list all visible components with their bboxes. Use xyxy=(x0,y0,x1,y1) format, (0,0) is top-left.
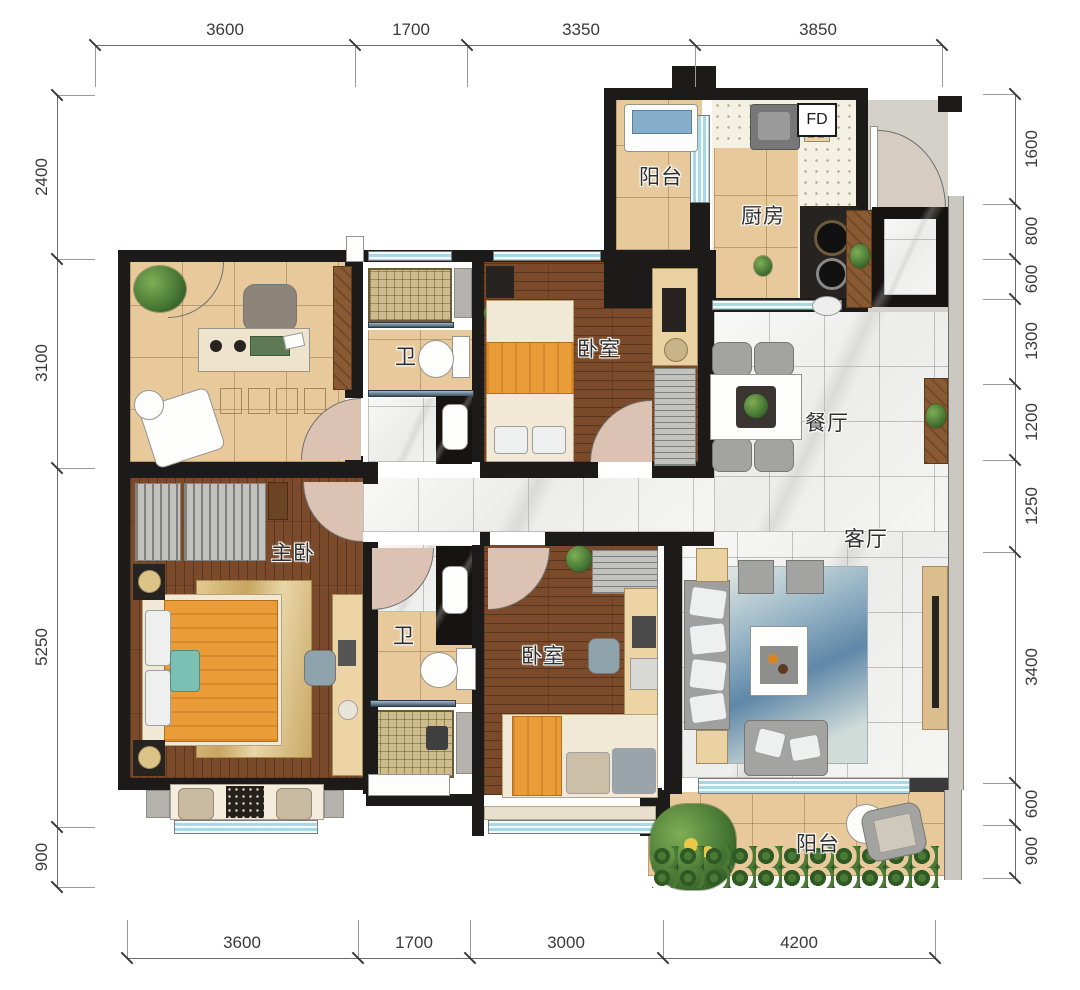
extension-line xyxy=(695,45,696,87)
exterior-wall xyxy=(944,790,962,880)
seat-table xyxy=(226,786,264,818)
dining-chair xyxy=(754,342,794,376)
bathtub xyxy=(368,774,450,796)
extension-line xyxy=(942,45,943,87)
papers xyxy=(630,658,658,690)
pillow xyxy=(145,670,171,726)
room-label-balcony-bottom: 阳台 xyxy=(796,828,840,858)
bath-sink xyxy=(442,566,468,614)
extension-line xyxy=(935,920,936,958)
burner xyxy=(814,220,850,256)
side-table xyxy=(134,390,164,420)
dim-left-3: 900 xyxy=(32,843,52,871)
bay-window xyxy=(174,820,318,834)
extension-line xyxy=(355,45,356,87)
desk xyxy=(332,594,363,776)
plant xyxy=(850,244,870,268)
room-label-balcony-top: 阳台 xyxy=(639,161,683,191)
seat-cushion xyxy=(276,788,312,820)
window xyxy=(368,251,452,261)
plant xyxy=(566,546,592,572)
extension-line xyxy=(470,920,471,958)
floor-marking xyxy=(304,388,326,414)
wardrobe xyxy=(135,483,181,561)
extension-line xyxy=(467,45,468,87)
tall-cabinet xyxy=(333,266,352,390)
radiator-cabinet xyxy=(654,368,696,466)
bay-pier xyxy=(146,790,170,818)
extension-line xyxy=(983,299,1016,300)
dim-bottom-2: 3000 xyxy=(547,933,585,953)
extension-line xyxy=(983,94,1016,95)
room-label-bedroom-bottom: 卧室 xyxy=(521,640,565,670)
dining-chair xyxy=(754,438,794,472)
extension-line xyxy=(983,384,1016,385)
pillow xyxy=(145,610,171,666)
dimension-line-top xyxy=(95,45,942,46)
tv-on-dresser xyxy=(662,288,686,332)
wall xyxy=(604,88,616,250)
corridor-floor xyxy=(363,478,714,532)
toilet-tank xyxy=(456,648,476,690)
lamp xyxy=(138,746,161,769)
toilet-tank xyxy=(452,336,470,378)
entry-door-leaf xyxy=(870,126,878,210)
fd-label: FD xyxy=(806,111,827,129)
dim-bottom-1: 1700 xyxy=(395,933,433,953)
extension-line xyxy=(983,259,1016,260)
room-label-bedroom-top: 卧室 xyxy=(577,333,621,363)
dining-chair xyxy=(712,342,752,376)
wall xyxy=(856,100,868,212)
wardrobe xyxy=(184,483,266,561)
shower-top xyxy=(368,268,452,322)
extension-line xyxy=(983,825,1016,826)
pillow xyxy=(532,426,566,454)
desk-item xyxy=(338,700,358,720)
extension-line xyxy=(57,259,95,260)
chair xyxy=(588,638,620,674)
dim-top-0: 3600 xyxy=(206,20,244,40)
sofa-cushion xyxy=(688,586,728,621)
wall xyxy=(545,532,714,546)
wall xyxy=(363,462,378,484)
dim-top-1: 1700 xyxy=(392,20,430,40)
bay-window-seat xyxy=(484,806,656,820)
laptop xyxy=(632,616,656,648)
dim-left-2: 5250 xyxy=(32,628,52,666)
pillow xyxy=(566,752,610,794)
window xyxy=(493,251,601,261)
floor-marking xyxy=(248,388,270,414)
pillow xyxy=(494,426,528,454)
dim-right-8: 900 xyxy=(1022,837,1042,865)
dim-top-3: 3850 xyxy=(799,20,837,40)
dim-right-1: 800 xyxy=(1022,217,1042,245)
dim-right-4: 1200 xyxy=(1022,403,1042,441)
tv xyxy=(932,596,939,708)
extension-line xyxy=(983,460,1016,461)
extension-line xyxy=(57,468,95,469)
bay-pier xyxy=(324,790,344,818)
bay-window xyxy=(488,820,656,834)
extension-line xyxy=(358,920,359,958)
wall xyxy=(690,203,710,253)
extension-line xyxy=(57,827,95,828)
bath-sink xyxy=(442,404,468,450)
fd-marker: FD xyxy=(797,103,837,137)
dim-left-0: 2400 xyxy=(32,158,52,196)
shower-sliding-door xyxy=(368,322,454,328)
extension-line xyxy=(983,204,1016,205)
dim-right-3: 1300 xyxy=(1022,322,1042,360)
room-label-living: 客厅 xyxy=(844,523,888,553)
wall xyxy=(118,250,130,790)
bath-mat xyxy=(454,268,472,318)
ottoman xyxy=(786,560,824,594)
wall xyxy=(672,66,716,100)
floor-marking xyxy=(276,388,298,414)
extension-line xyxy=(983,878,1016,879)
wall xyxy=(664,532,682,794)
balcony-sliding-door xyxy=(698,778,910,794)
wall xyxy=(118,462,352,478)
accent-pillow xyxy=(170,650,200,692)
desk-item xyxy=(234,340,246,352)
dim-top-2: 3350 xyxy=(562,20,600,40)
dim-bottom-0: 3600 xyxy=(223,933,261,953)
shower-sliding-door xyxy=(370,700,456,707)
sofa-cushion xyxy=(689,622,728,656)
chair xyxy=(304,650,336,686)
dim-bottom-3: 4200 xyxy=(780,933,818,953)
flower xyxy=(778,664,788,674)
wall xyxy=(480,532,490,546)
extension-line xyxy=(663,920,664,958)
toilet xyxy=(420,652,458,688)
extension-line xyxy=(57,887,95,888)
kitchen-sink-basin xyxy=(758,112,790,140)
toilet xyxy=(418,340,454,378)
bed-blanket xyxy=(486,342,574,394)
extension-line xyxy=(95,45,96,87)
wall xyxy=(480,462,598,478)
nightstand xyxy=(486,266,514,298)
wall xyxy=(604,88,868,100)
table-centerpiece xyxy=(744,394,768,418)
flower xyxy=(768,654,778,664)
dim-right-6: 3400 xyxy=(1022,648,1042,686)
bed-blanket xyxy=(512,716,562,796)
shower-fixture xyxy=(426,726,448,750)
extension-line xyxy=(983,783,1016,784)
duct xyxy=(346,236,364,262)
wall xyxy=(938,96,962,112)
dim-left-1: 3100 xyxy=(32,344,52,382)
shoe-cabinet-top xyxy=(884,219,936,295)
room-label-master: 主卧 xyxy=(271,537,315,567)
room-label-dining: 餐厅 xyxy=(805,407,849,437)
sofa-cushion xyxy=(688,692,728,725)
desk-item xyxy=(210,340,222,352)
pot xyxy=(812,296,842,316)
dim-right-7: 600 xyxy=(1022,790,1042,818)
sofa-cushion xyxy=(688,658,727,692)
room-label-kitchen: 厨房 xyxy=(741,200,785,230)
burner xyxy=(816,258,848,290)
dimension-line-left xyxy=(57,95,58,887)
side-table xyxy=(696,548,728,582)
office-chair xyxy=(243,284,297,332)
dim-right-0: 1600 xyxy=(1022,130,1042,168)
seat-cushion xyxy=(178,788,214,820)
ottoman xyxy=(738,560,774,594)
wardrobe-cabinet xyxy=(268,482,288,520)
floor-marking xyxy=(220,388,242,414)
extension-line xyxy=(983,552,1016,553)
wall xyxy=(472,790,484,836)
exterior-wall xyxy=(948,196,964,790)
dining-chair xyxy=(712,438,752,472)
desk-item xyxy=(338,640,356,666)
washing-machine-lid xyxy=(632,110,692,134)
wall xyxy=(472,262,484,462)
pillow xyxy=(612,748,656,794)
dim-right-5: 1250 xyxy=(1022,487,1042,525)
side-table xyxy=(696,730,728,764)
extension-line xyxy=(57,95,95,96)
room-label-bath-bottom: 卫 xyxy=(393,620,415,650)
dimension-line-bottom xyxy=(127,958,935,959)
room-label-bath-top: 卫 xyxy=(395,341,417,371)
plant xyxy=(754,256,772,276)
floor-plan-canvas: FD xyxy=(0,0,1080,990)
lamp xyxy=(138,570,161,593)
pillow xyxy=(788,734,822,763)
desk xyxy=(624,588,658,722)
extension-line xyxy=(127,920,128,958)
dimension-line-right xyxy=(1015,94,1016,878)
dim-right-2: 600 xyxy=(1022,265,1042,293)
plant xyxy=(926,404,946,428)
basket xyxy=(664,338,688,362)
